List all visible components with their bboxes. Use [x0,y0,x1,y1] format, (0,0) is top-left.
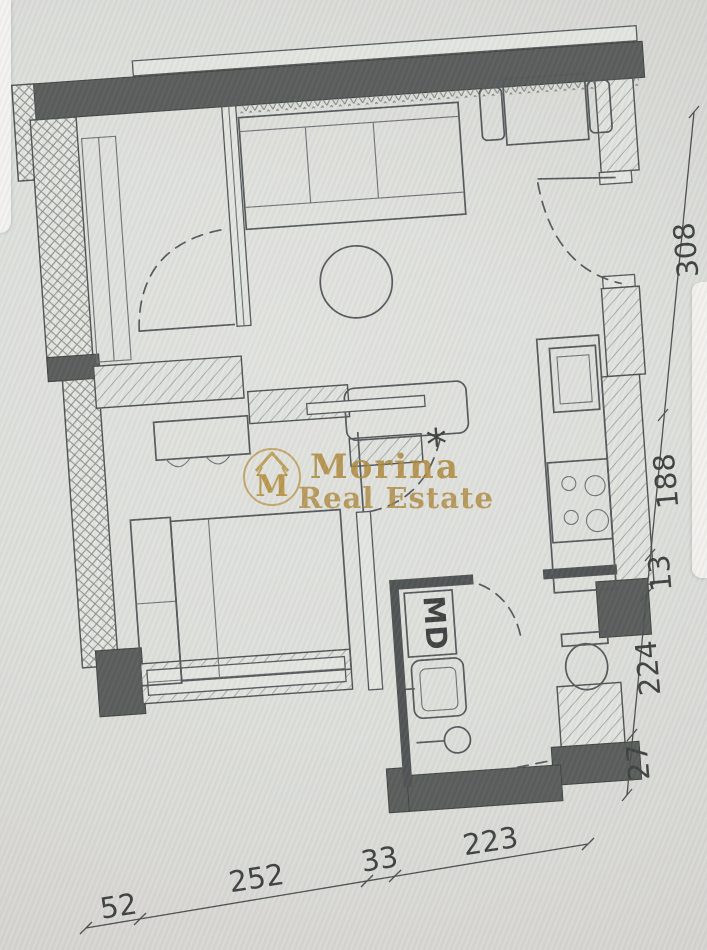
living-room-furniture [237,72,624,325]
bed-headboard-line [136,601,176,604]
left-exterior-wall-upper [30,117,94,382]
faucet [405,689,415,690]
kitchen-counter [537,335,617,593]
screenshot: MD * 308 188 13 224 27 [0,0,707,950]
dimension-label: 224 [629,639,668,697]
sofa-back-line [239,116,458,131]
sofa-seat-line [245,192,464,207]
dimension-tick [658,409,668,421]
round-table [318,243,395,320]
watermark-brand-2: Real Estate [298,481,494,515]
bedroom-partition-wall [356,511,382,690]
dimension-line [86,844,588,928]
dimension-label: 252 [226,857,286,899]
kitchen-sink-basin [557,355,592,404]
dimension-label: 13 [641,553,678,593]
sofa [239,102,466,229]
dimension-label: 52 [98,886,140,925]
ui-card-edge [0,0,11,233]
dimension-label: 33 [359,839,401,878]
wall-pillar [47,354,101,382]
dimension-tick [80,922,92,934]
dimension-label: 27 [619,742,656,782]
dimension-label: 223 [460,820,520,862]
bathroom-top-wall [389,574,473,590]
dimensions-bottom: 52 252 33 223 [80,820,594,934]
scroll-indicator[interactable] [692,282,707,578]
floor-plan-photo: MD * 308 188 13 224 27 [0,0,707,950]
sofa-cushion-line [305,127,310,203]
dimension-label: 308 [667,221,706,279]
wardrobe [154,416,250,460]
exterior-walls [11,25,695,835]
bed-fold-line [208,519,219,679]
left-exterior-wall-lower [62,378,118,668]
burner [586,509,609,532]
bathroom-right-wall [557,682,625,750]
burner [584,475,605,496]
dimension-tick [582,838,594,850]
wall-pillar [95,648,145,717]
closet-label: MD [416,595,454,652]
burner [564,510,579,525]
entry-bedroom-wall [94,356,245,408]
washbasin-bowl [419,667,458,711]
shower-arm [417,741,445,743]
sofa-cushion-line [373,122,378,198]
entry-door-swing [132,229,234,331]
shower [444,726,472,754]
entry-door-leaf [139,324,235,331]
entry-closet-line [99,137,115,360]
kitchen [537,335,617,593]
watermark-monogram: M [255,469,288,504]
floor-plan: MD * [11,25,695,835]
bathroom-door-swing [461,575,521,645]
bathroom-left-wall [389,580,412,788]
burner [561,476,576,491]
bathroom-bottom-wall [403,765,563,812]
watermark: M Morina Real Estate [244,447,494,515]
dimension-label: 188 [647,452,686,510]
right-exterior-wall-upper [595,78,639,172]
right-exterior-wall-mid [601,286,645,376]
balcony-door-swing [538,178,621,289]
